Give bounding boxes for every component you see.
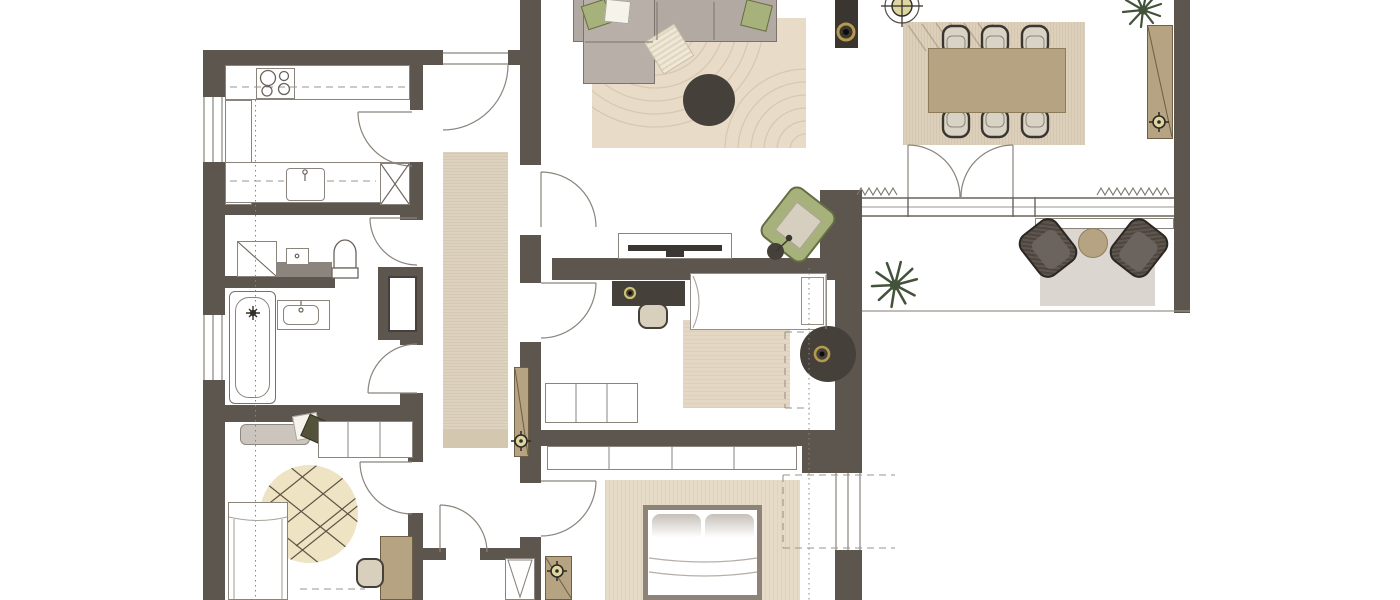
- column-spot-symbol: [838, 24, 854, 40]
- closet-triangle: [508, 560, 532, 597]
- outlet-symbol-hallway: [511, 431, 531, 451]
- window: [204, 97, 860, 550]
- floor-plan: [0, 0, 1400, 600]
- linework-overlay: [0, 0, 1400, 600]
- wc-basin-dot: [295, 254, 299, 258]
- dashed-lines: [230, 87, 895, 589]
- kitchen-sink-faucet: [303, 170, 307, 181]
- sofa-seams: [585, 2, 714, 42]
- pendant-spot-symbol: [815, 347, 829, 361]
- toilet: [332, 240, 358, 278]
- doors: [358, 53, 596, 552]
- reference-dotted-lines: [256, 100, 810, 600]
- plant-balcony: [872, 262, 917, 307]
- double-bed-folds: [649, 558, 757, 576]
- shower-diagonal: [238, 242, 276, 276]
- plant-dining: [1123, 0, 1161, 27]
- window-band-lines: [862, 197, 1174, 217]
- cooktop-burners: [261, 71, 290, 97]
- french-doors: [908, 145, 1013, 197]
- vanity-faucet: [299, 301, 303, 312]
- bathtub-faucet: [246, 306, 260, 320]
- kids-bed-lines: [229, 517, 287, 599]
- wardrobe-dividers: [348, 384, 734, 469]
- single-bed-lines: [693, 275, 826, 329]
- cabinet-diagonals: [515, 27, 1172, 598]
- desk-spot-symbol: [625, 288, 635, 298]
- floor-lamp-stem: [776, 236, 792, 252]
- appliance-x: [381, 164, 409, 204]
- outlet-symbol-sideboard: [1149, 112, 1169, 132]
- ceiling-light-symbol: [881, 0, 923, 27]
